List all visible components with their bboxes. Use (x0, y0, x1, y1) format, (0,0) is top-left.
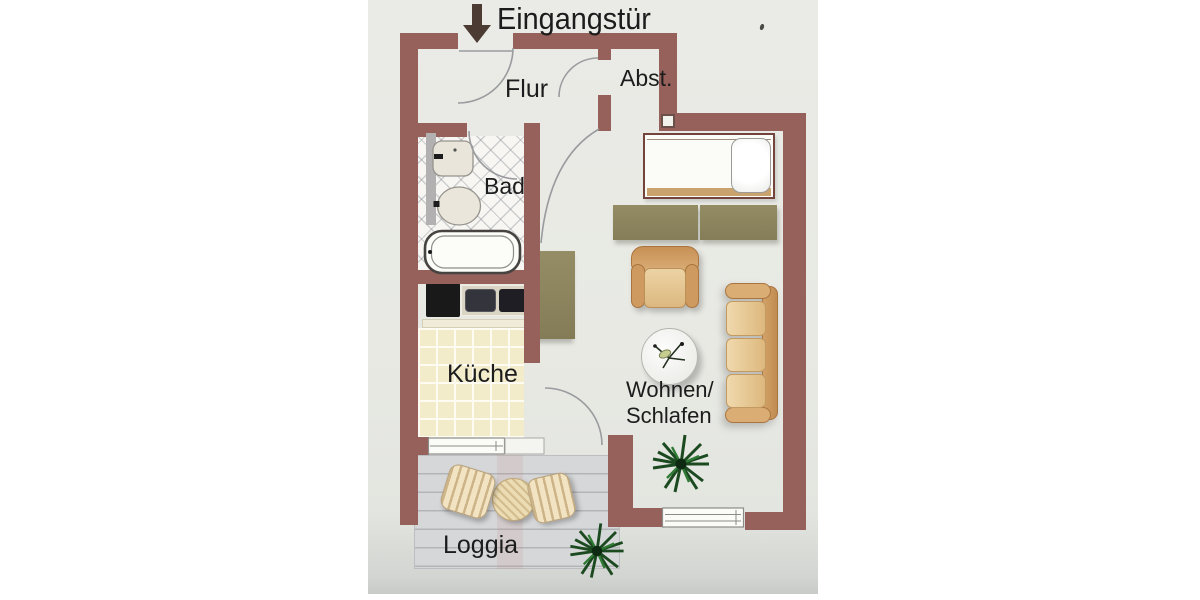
room-label-wohnen-schlafen: Wohnen/ Schlafen (626, 377, 714, 429)
sink-basin (465, 289, 496, 312)
stove-icon (426, 283, 460, 317)
sofa-cushion (726, 374, 766, 408)
wall-shaft-notch (661, 114, 675, 128)
armchair (631, 246, 699, 309)
armchair-arm-right (685, 264, 699, 308)
armchair-seat (644, 268, 686, 308)
room-label-loggia: Loggia (443, 531, 518, 560)
wall-loggia-vertical (608, 435, 633, 513)
pillow-icon (731, 138, 771, 193)
wall-kitchen-top (418, 270, 540, 284)
floorplan-page: Eingangstür Flur Abst. Bad Küche Wohnen/… (0, 0, 1200, 600)
bed (643, 133, 775, 199)
room-label-kueche: Küche (447, 360, 518, 389)
sofa (724, 283, 779, 424)
room-label-wohnen-line2: Schlafen (626, 403, 714, 429)
room-label-wohnen-line1: Wohnen/ (626, 377, 714, 403)
room-label-flur: Flur (505, 75, 548, 104)
wardrobe-left (613, 205, 698, 240)
counter-shelf-edge (422, 319, 534, 328)
armchair-arm-left (631, 264, 645, 308)
wall-kitchen-bottom-stub (418, 437, 429, 455)
wall-left (400, 33, 418, 525)
wall-bad-kitchen-right (524, 123, 540, 363)
sofa-cushion (726, 301, 766, 336)
wall-loggia-horizontal (608, 508, 662, 527)
room-label-bad: Bad (484, 173, 525, 200)
room-label-abstellraum: Abst. (620, 65, 672, 92)
entrance-label: Eingangstür (497, 1, 651, 37)
wardrobe-right (700, 205, 777, 240)
rug-vertical (537, 251, 575, 339)
wall-right (783, 113, 806, 530)
kitchen-counter-sink-icon (461, 285, 533, 316)
wall-bottom-right (745, 512, 806, 530)
sofa-armrest-top (725, 283, 771, 299)
wall-abst-left-upper (598, 48, 611, 60)
wall-bad-top (418, 123, 467, 137)
sofa-armrest-bottom (725, 407, 771, 423)
bathroom-floor-tiles (418, 136, 524, 276)
sofa-cushion (726, 338, 766, 372)
wall-abst-left-lower (598, 95, 611, 131)
